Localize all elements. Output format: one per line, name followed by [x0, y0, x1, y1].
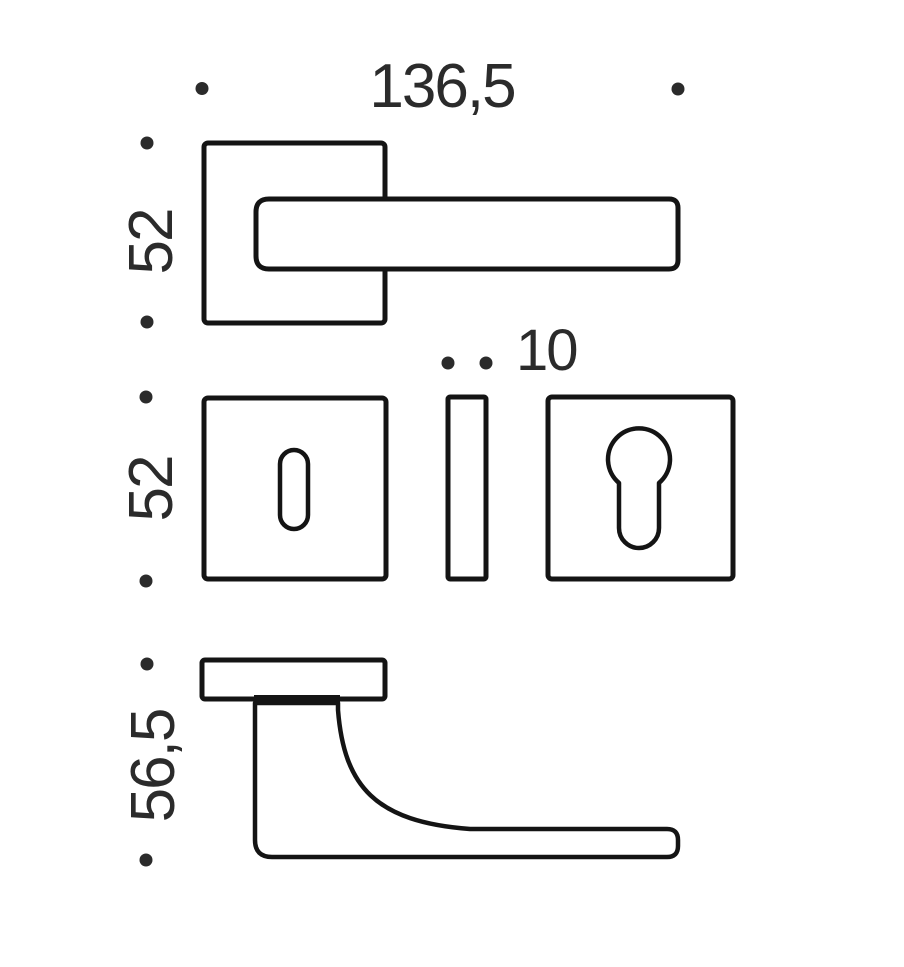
- neck-junction-line: [254, 695, 340, 705]
- dimension-dot: [140, 575, 153, 588]
- handle-top-view: 136,5 52: [117, 52, 685, 329]
- dimension-label-escutcheon-thickness: 10: [516, 318, 577, 383]
- dimension-label-escutcheon-height: 52: [117, 457, 186, 522]
- keyhole-slot: [280, 450, 308, 529]
- dimension-dot: [141, 658, 154, 671]
- rosette-side-profile: [202, 660, 385, 699]
- handle-side-view: 56,5: [119, 658, 678, 867]
- dimension-dot: [141, 137, 154, 150]
- euro-cylinder-keyhole: [608, 428, 670, 548]
- dimension-label-top-width: 136,5: [369, 52, 514, 121]
- dimension-dot: [672, 83, 685, 96]
- dimension-dot: [442, 357, 455, 370]
- dimension-dot: [196, 82, 209, 95]
- dimension-label-top-height: 52: [117, 210, 186, 275]
- lever-side-profile: [255, 703, 678, 857]
- dimension-dot: [480, 357, 493, 370]
- dimension-dot: [140, 854, 153, 867]
- dimension-dot: [141, 316, 154, 329]
- door-handle-dimension-drawing: 136,5 52 52 10: [0, 0, 904, 967]
- dimension-label-side-projection: 56,5: [119, 710, 188, 823]
- escutcheon-row: 52 10: [117, 318, 733, 588]
- lever-bar-front: [256, 199, 678, 269]
- escutcheon-side-profile: [448, 397, 486, 579]
- dimension-dot: [140, 391, 153, 404]
